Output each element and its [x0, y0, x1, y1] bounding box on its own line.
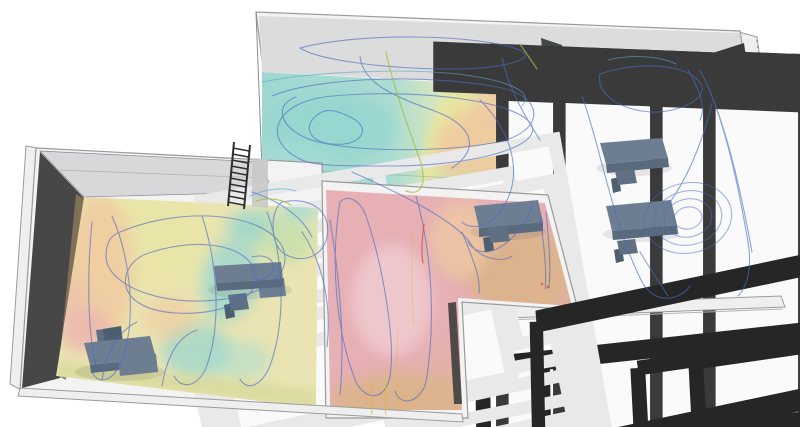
heat-patch [352, 245, 432, 355]
building-airflow-svg [0, 0, 800, 427]
chair [615, 169, 637, 185]
chair [488, 226, 510, 243]
3d-visualization-viewport[interactable] [0, 0, 800, 427]
flow-dot [541, 283, 543, 285]
heat-patch [210, 340, 270, 380]
flow-dot [547, 286, 550, 289]
